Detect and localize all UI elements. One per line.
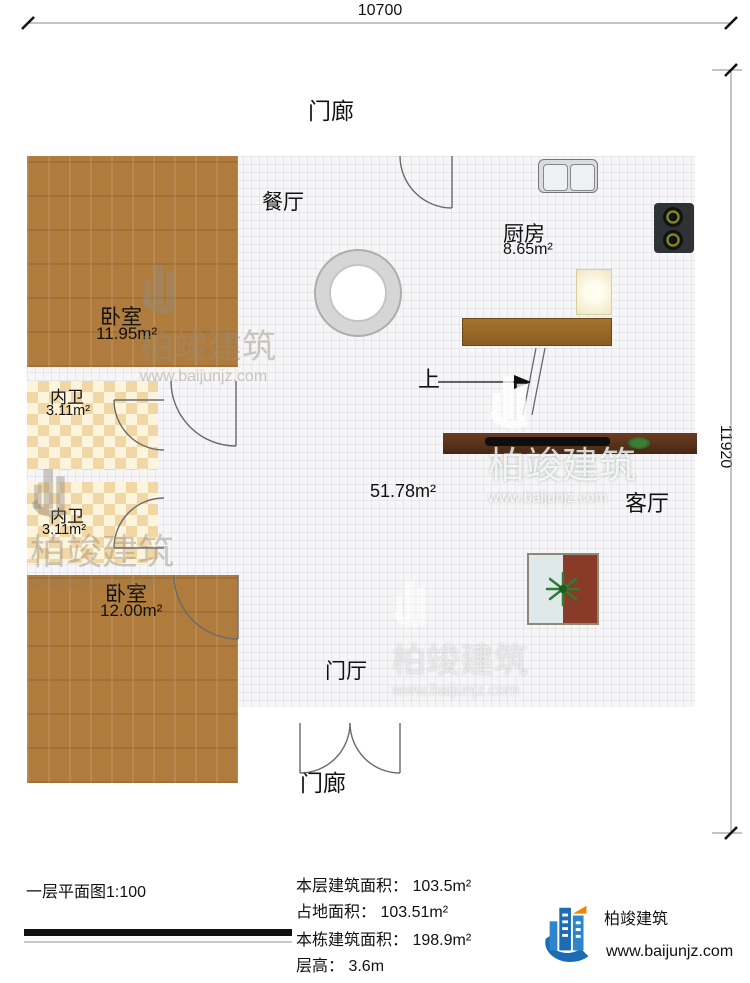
watermark: 柏竣建筑www.baijunjz.com [488, 372, 636, 506]
watermark-building-icon [488, 372, 534, 430]
watermark-building-icon [30, 466, 72, 518]
watermark: 柏竣建筑www.baijunjz.com [140, 262, 276, 386]
title-underline [24, 929, 292, 936]
plan-title: 一层平面图1:100 [26, 878, 146, 902]
watermark: 柏竣建筑www.baijunjz.com [392, 578, 528, 700]
company-logo-url: www.baijunjz.com [606, 943, 733, 961]
plan-title-text: 一层平面图 [26, 884, 106, 901]
watermark: 柏竣建筑www.baijunjz.com [30, 466, 174, 593]
plan-scale: 1:100 [106, 884, 146, 901]
stat-footprint-area: 占地面积： 103.51m² [296, 898, 448, 922]
floor-plan: 10700 11920 门廊 门廊 卧室 11.95m² 内卫 3.11m² 内… [0, 0, 750, 983]
company-logo-icon [538, 900, 600, 964]
title-underline-thin [24, 941, 292, 943]
stat-floor-area: 本层建筑面积： 103.5m² [296, 872, 471, 896]
stat-total-area: 本栋建筑面积： 198.9m² [296, 926, 471, 950]
watermark-building-icon [140, 262, 182, 314]
watermark-building-icon [392, 578, 432, 628]
stat-floor-height: 层高： 3.6m [296, 952, 384, 976]
company-logo-name: 柏竣建筑 [604, 905, 668, 929]
